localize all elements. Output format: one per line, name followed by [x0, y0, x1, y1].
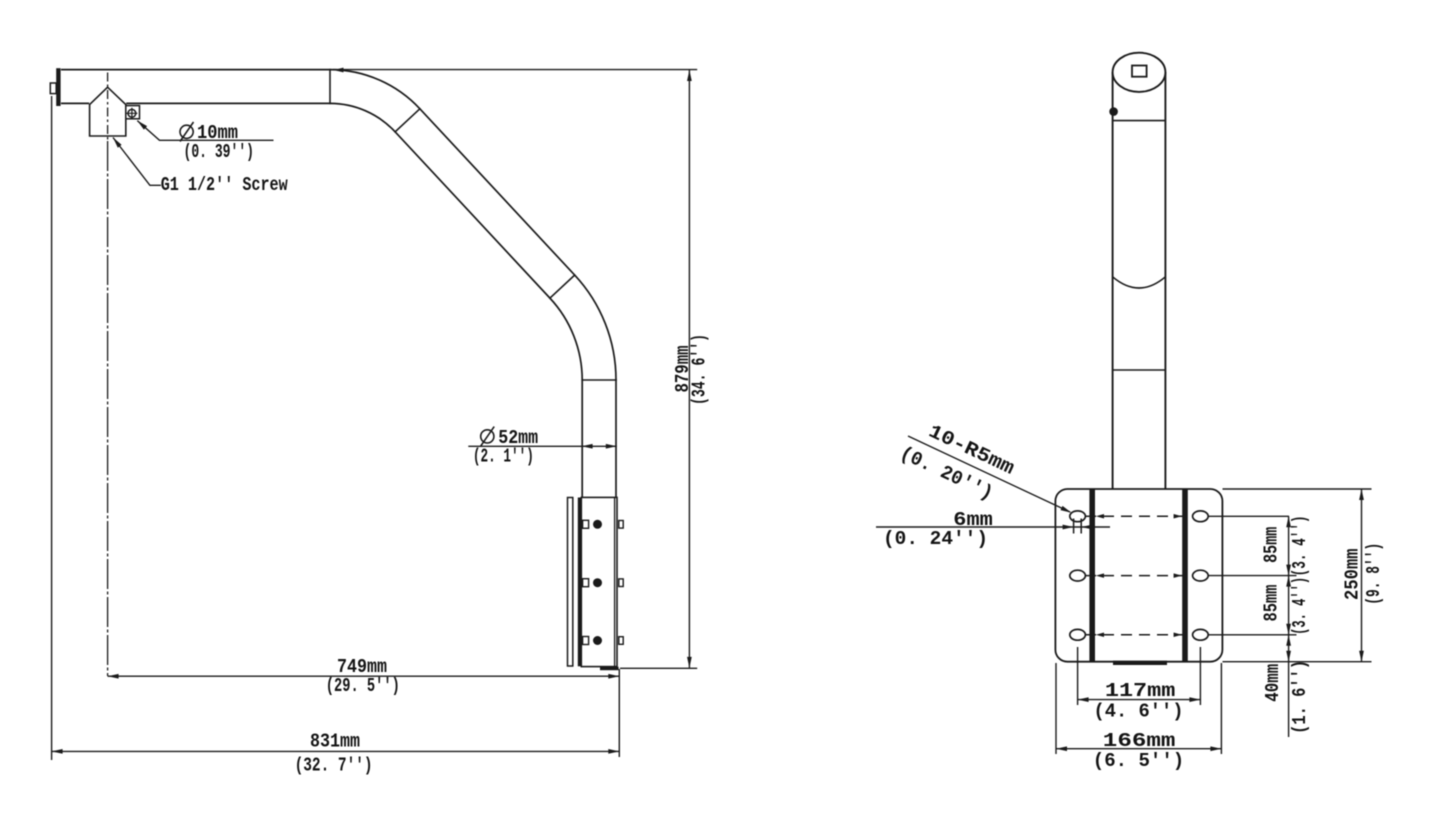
svg-text:(3. 4''): (3. 4'') [1289, 577, 1311, 635]
svg-text:(34. 6''): (34. 6'') [689, 334, 711, 405]
svg-text:166mm: 166mm [1103, 730, 1176, 752]
svg-text:831mm: 831mm [310, 731, 360, 753]
svg-text:(2. 1''): (2. 1'') [473, 446, 534, 468]
svg-text:(32. 7''): (32. 7'') [295, 755, 373, 777]
svg-text:G1 1/2'' Screw: G1 1/2'' Screw [161, 174, 288, 196]
svg-text:250mm: 250mm [1342, 548, 1364, 600]
svg-text:(6. 5''): (6. 5'') [1093, 750, 1184, 772]
svg-text:117mm: 117mm [1105, 680, 1176, 702]
svg-text:(9. 8''): (9. 8'') [1363, 543, 1385, 605]
svg-text:(4. 6''): (4. 6'') [1094, 701, 1184, 723]
svg-text:(0. 39''): (0. 39'') [184, 141, 255, 163]
svg-text:(1. 6''): (1. 6'') [1289, 660, 1311, 734]
svg-text:(29. 5''): (29. 5'') [326, 675, 400, 697]
svg-text:(3. 4''): (3. 4'') [1289, 515, 1311, 576]
svg-text:85mm: 85mm [1261, 527, 1283, 563]
svg-text:85mm: 85mm [1261, 585, 1283, 622]
svg-text:(0. 24''): (0. 24'') [883, 528, 988, 550]
svg-text:40mm: 40mm [1262, 664, 1284, 702]
